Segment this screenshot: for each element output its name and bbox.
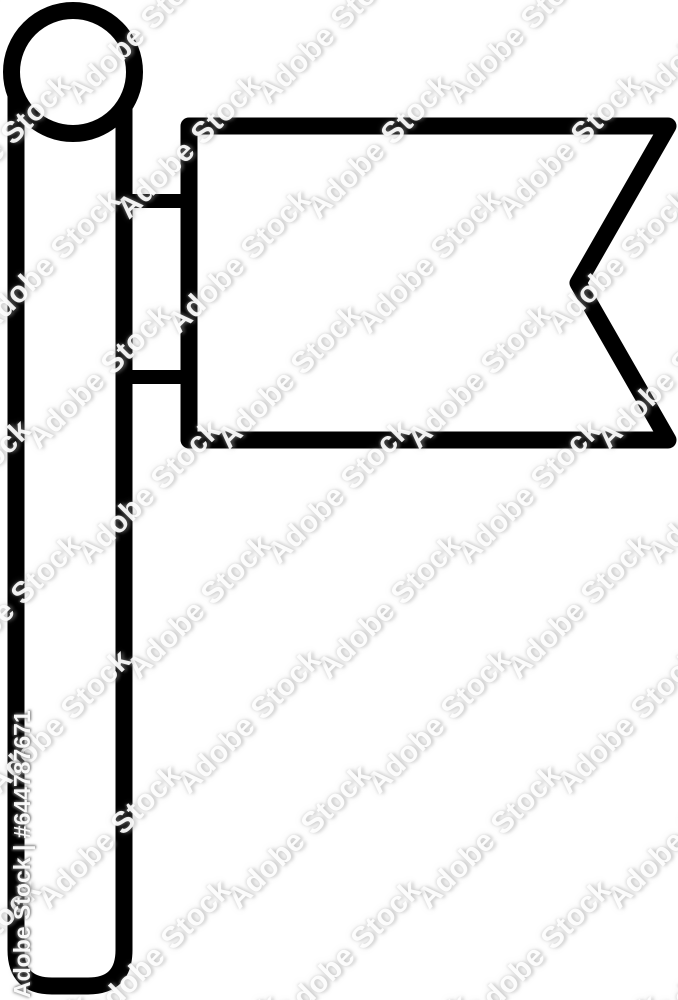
flag-banner: [189, 126, 668, 440]
stock-image-preview: Adobe StockAdobe StockAdobe StockAdobe S…: [0, 0, 678, 1000]
pole-finial-circle: [12, 11, 135, 134]
watermark-id-label: Adobe Stock | #644787671: [9, 710, 36, 998]
flag-line-icon: [0, 0, 678, 1000]
